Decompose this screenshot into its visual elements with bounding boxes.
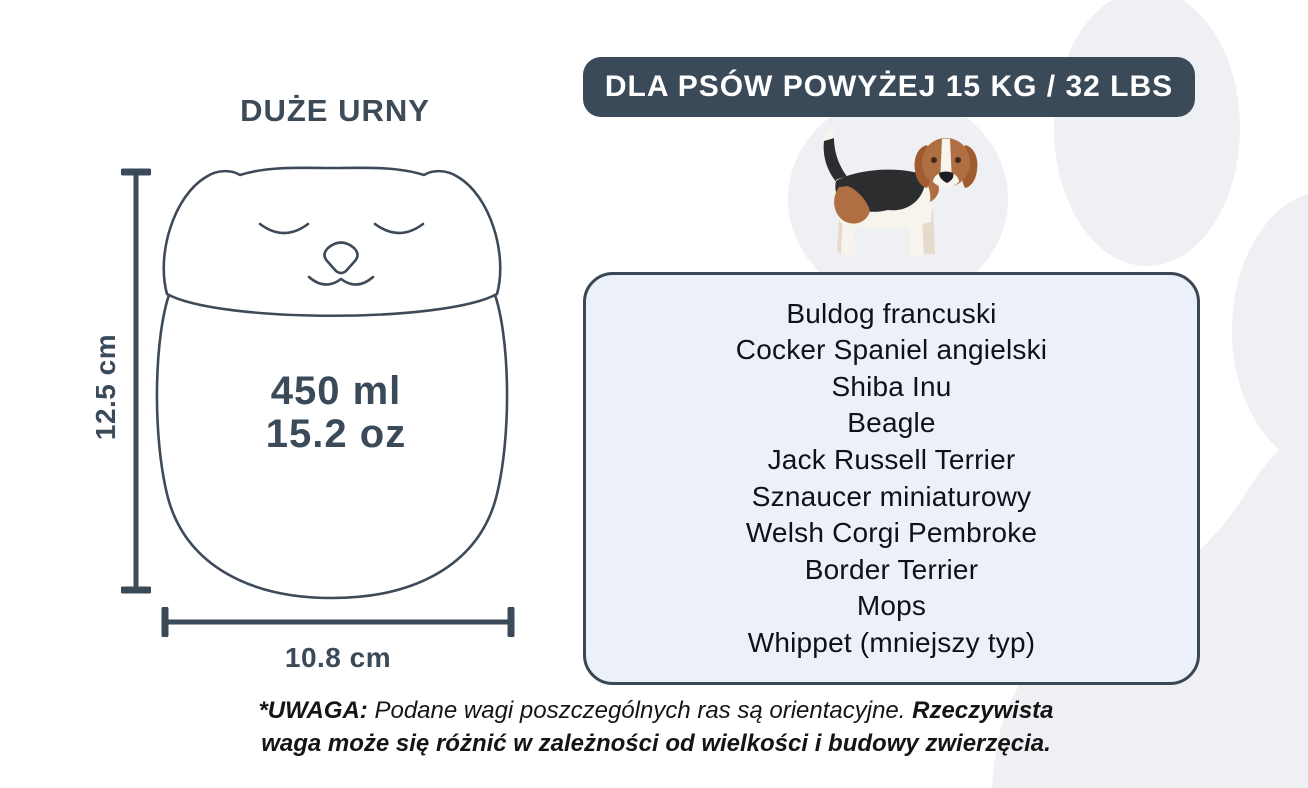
dog-eye xyxy=(955,157,961,163)
dog-eye xyxy=(931,157,937,163)
note-label-bold: *UWAGA: xyxy=(258,697,367,724)
volume-oz: 15.2 oz xyxy=(206,413,466,456)
disclaimer-note: *UWAGA: Podane wagi poszczególnych ras s… xyxy=(245,694,1067,760)
width-label: 10.8 cm xyxy=(238,642,438,674)
volume-ml: 450 ml xyxy=(206,370,466,413)
breed-list-item: Welsh Corgi Pembroke xyxy=(746,515,1037,552)
note-text-regular: Podane wagi poszczególnych ras są orient… xyxy=(374,697,905,724)
breed-list-item: Sznaucer miniaturowy xyxy=(752,479,1031,516)
dog-head xyxy=(915,138,978,188)
paw-toe-shape xyxy=(1054,0,1240,266)
breed-list-item: Cocker Spaniel angielski xyxy=(736,332,1047,369)
breed-list-item: Mops xyxy=(857,588,926,625)
breed-list-item: Shiba Inu xyxy=(831,369,951,406)
page-title: DUŻE URNY xyxy=(150,92,520,130)
infographic-canvas: DUŻE URNY 450 ml 15.2 oz 12.5 cm 10.8 cm… xyxy=(0,0,1308,788)
width-dimension-line xyxy=(161,607,515,637)
height-label: 12.5 cm xyxy=(90,307,122,467)
breed-list-card: Buldog francuski Cocker Spaniel angielsk… xyxy=(583,272,1200,685)
volume-label: 450 ml 15.2 oz xyxy=(206,370,466,456)
paw-toe-shape xyxy=(1232,190,1308,470)
height-dimension-line xyxy=(121,167,151,595)
dog-leg xyxy=(909,215,924,257)
breed-list-item: Whippet (mniejszy typ) xyxy=(748,625,1036,662)
breed-list-item: Buldog francuski xyxy=(786,296,996,333)
breed-list-item: Border Terrier xyxy=(805,552,978,589)
beagle-illustration xyxy=(806,130,978,260)
breed-list-item: Jack Russell Terrier xyxy=(768,442,1016,479)
breed-list-item: Beagle xyxy=(847,405,935,442)
urn-lid xyxy=(164,168,500,316)
weight-category-banner: DLA PSÓW POWYŻEJ 15 KG / 32 LBS xyxy=(583,57,1195,117)
